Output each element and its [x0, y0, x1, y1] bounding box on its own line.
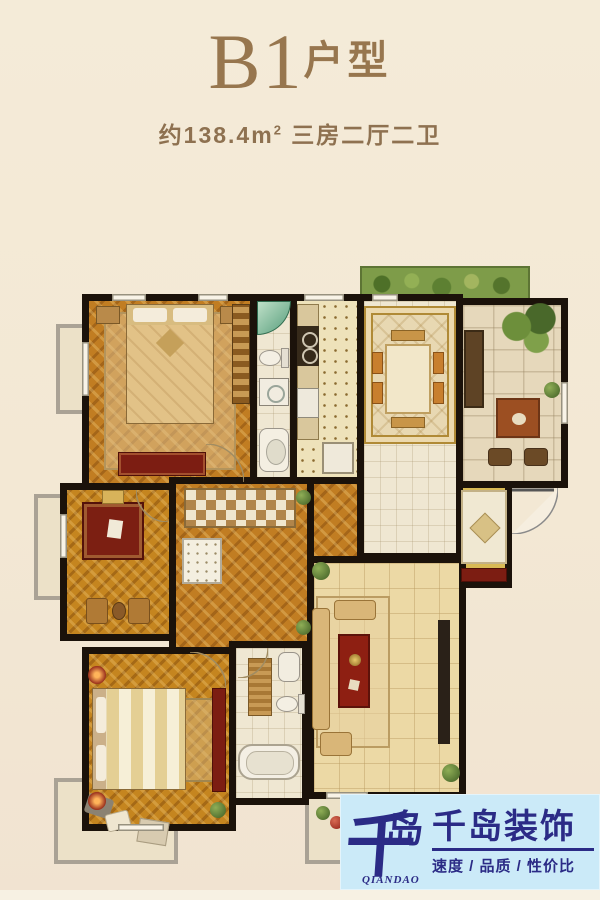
- bedside-lamp: [88, 792, 106, 810]
- sofa-main: [312, 608, 330, 730]
- room-count-label: 三房二厅二卫: [283, 122, 441, 148]
- kitchen-counter: [297, 304, 319, 440]
- area-value: 约138.4m: [159, 122, 274, 148]
- window: [372, 294, 398, 301]
- table-decor: [348, 679, 360, 691]
- seat-cushion: [488, 448, 512, 466]
- window: [304, 294, 344, 301]
- tea-set: [512, 413, 526, 425]
- dining-chair: [372, 382, 383, 404]
- door-mat: [182, 538, 222, 584]
- dresser: [118, 452, 206, 476]
- hallway-east: [307, 477, 364, 563]
- double-bed: [126, 304, 214, 424]
- logo-mark-char2: 岛: [384, 798, 426, 853]
- dining-bench: [391, 330, 425, 341]
- burner: [302, 332, 318, 348]
- toilet: [276, 696, 298, 712]
- desk-paper: [107, 519, 123, 539]
- mat: [136, 818, 169, 846]
- bathroom-door-arc: [238, 648, 268, 678]
- rug-medallion: [469, 512, 500, 543]
- company-logo: 千 岛 QIANDAO 千岛装饰 速度 / 品质 / 性价比: [340, 794, 600, 890]
- bathroom-sink: [259, 428, 289, 472]
- runner-rug: [184, 488, 296, 528]
- burner: [302, 348, 318, 364]
- dining-chair: [433, 352, 444, 374]
- potted-plant: [296, 620, 311, 635]
- potted-plant: [296, 490, 311, 505]
- armchair: [128, 598, 150, 624]
- master-bed: [92, 688, 186, 790]
- console-table: [461, 568, 507, 582]
- garden-bench: [464, 330, 484, 408]
- bed-pillow: [96, 745, 106, 781]
- dining-chair: [433, 382, 444, 404]
- sink-basin: [266, 439, 286, 465]
- dining-chair: [372, 352, 383, 374]
- coffee-table: [338, 634, 370, 708]
- bedroom-door-arc: [206, 444, 244, 482]
- sofa-seat: [334, 600, 376, 620]
- tub-basin: [246, 751, 294, 775]
- logo-mark: 千 岛 QIANDAO: [340, 796, 432, 888]
- window: [118, 824, 164, 831]
- company-tagline: 速度 / 品质 / 性价比: [432, 855, 594, 876]
- bathtub: [238, 744, 300, 780]
- bed-duvet: [107, 689, 185, 789]
- bed-pillow: [96, 697, 106, 733]
- window: [198, 294, 228, 301]
- logo-latin-name: QIANDAO: [362, 874, 420, 886]
- page: B1户型 约138.4m2 三房二厅二卫: [0, 0, 600, 900]
- unit-code: B1: [208, 18, 303, 105]
- armchair: [86, 598, 108, 624]
- potted-plant: [312, 562, 330, 580]
- bed-pillow: [173, 308, 207, 322]
- bottom-edge-strip: [0, 890, 600, 900]
- potted-plant: [210, 802, 226, 818]
- window: [561, 382, 568, 424]
- potted-plant: [442, 764, 460, 782]
- page-title: B1户型: [0, 22, 600, 102]
- dining-table: [385, 344, 431, 414]
- bathroom-sink: [278, 652, 300, 682]
- seat-cushion: [524, 448, 548, 466]
- bedside-lamp: [88, 666, 106, 684]
- company-name: 千岛装饰: [432, 809, 594, 845]
- bed-pillow: [133, 308, 167, 322]
- window: [112, 294, 146, 301]
- table-decor: [349, 654, 361, 666]
- window: [82, 342, 89, 396]
- unit-type-label: 户型: [304, 39, 392, 83]
- toilet-tank: [281, 348, 289, 368]
- study-door-arc: [136, 490, 168, 522]
- wardrobe: [212, 688, 226, 792]
- tv-console: [438, 620, 450, 744]
- foyer-rug: [461, 490, 507, 564]
- desk-chair: [102, 490, 124, 504]
- unit-specs: 约138.4m2 三房二厅二卫: [0, 116, 600, 150]
- wardrobe: [232, 304, 250, 404]
- toilet: [259, 350, 281, 366]
- tea-table: [496, 398, 540, 438]
- tree: [498, 303, 560, 355]
- master-door-arc: [190, 652, 226, 688]
- logo-text-block: 千岛装饰 速度 / 品质 / 性价比: [432, 809, 600, 876]
- kitchen-sink: [297, 388, 319, 418]
- area-superscript: 2: [274, 122, 283, 137]
- stove: [297, 326, 319, 366]
- desk: [82, 502, 144, 560]
- dining-bench: [391, 417, 425, 428]
- entry-door-arc: [512, 488, 558, 534]
- potted-plant: [544, 382, 560, 398]
- refrigerator: [322, 442, 354, 474]
- window: [60, 514, 67, 558]
- logo-divider: [432, 848, 594, 851]
- sofa-seat: [320, 732, 352, 756]
- toilet-tank: [298, 694, 305, 714]
- washer-drum: [267, 385, 285, 403]
- side-table: [112, 602, 126, 620]
- washing-machine: [259, 378, 289, 406]
- flower-pot: [316, 806, 330, 820]
- nightstand: [96, 306, 120, 324]
